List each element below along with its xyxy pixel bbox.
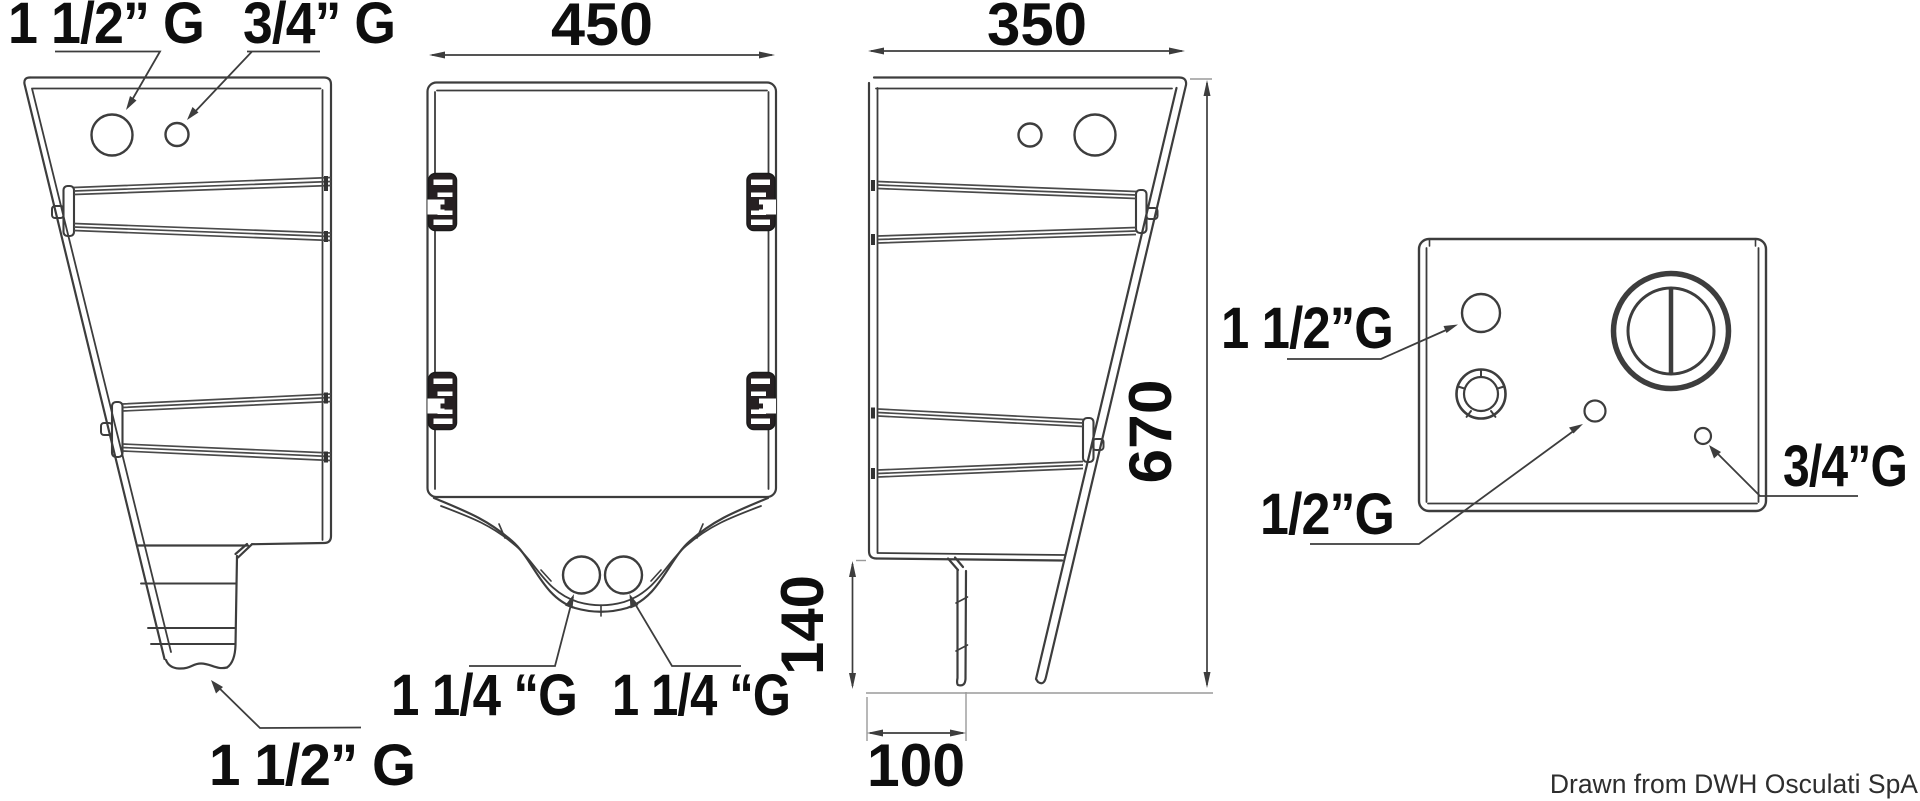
svg-text:3/4” G: 3/4” G (243, 0, 395, 56)
svg-text:100: 100 (867, 732, 965, 799)
svg-text:Drawn from DWH Osculati SpA: Drawn from DWH Osculati SpA (1550, 769, 1918, 799)
svg-text:670: 670 (1117, 380, 1184, 484)
svg-text:1 1/4 “G: 1 1/4 “G (612, 663, 790, 728)
svg-text:3/4”G: 3/4”G (1783, 434, 1907, 499)
svg-text:140: 140 (769, 575, 836, 675)
svg-text:1/2”G: 1/2”G (1260, 482, 1394, 547)
svg-text:1 1/2”G: 1 1/2”G (1221, 296, 1393, 361)
svg-text:1 1/2” G: 1 1/2” G (8, 0, 204, 56)
svg-text:1 1/2” G: 1 1/2” G (209, 733, 415, 798)
svg-text:1 1/4 “G: 1 1/4 “G (391, 663, 577, 728)
svg-text:350: 350 (987, 0, 1087, 58)
svg-text:450: 450 (551, 0, 653, 58)
